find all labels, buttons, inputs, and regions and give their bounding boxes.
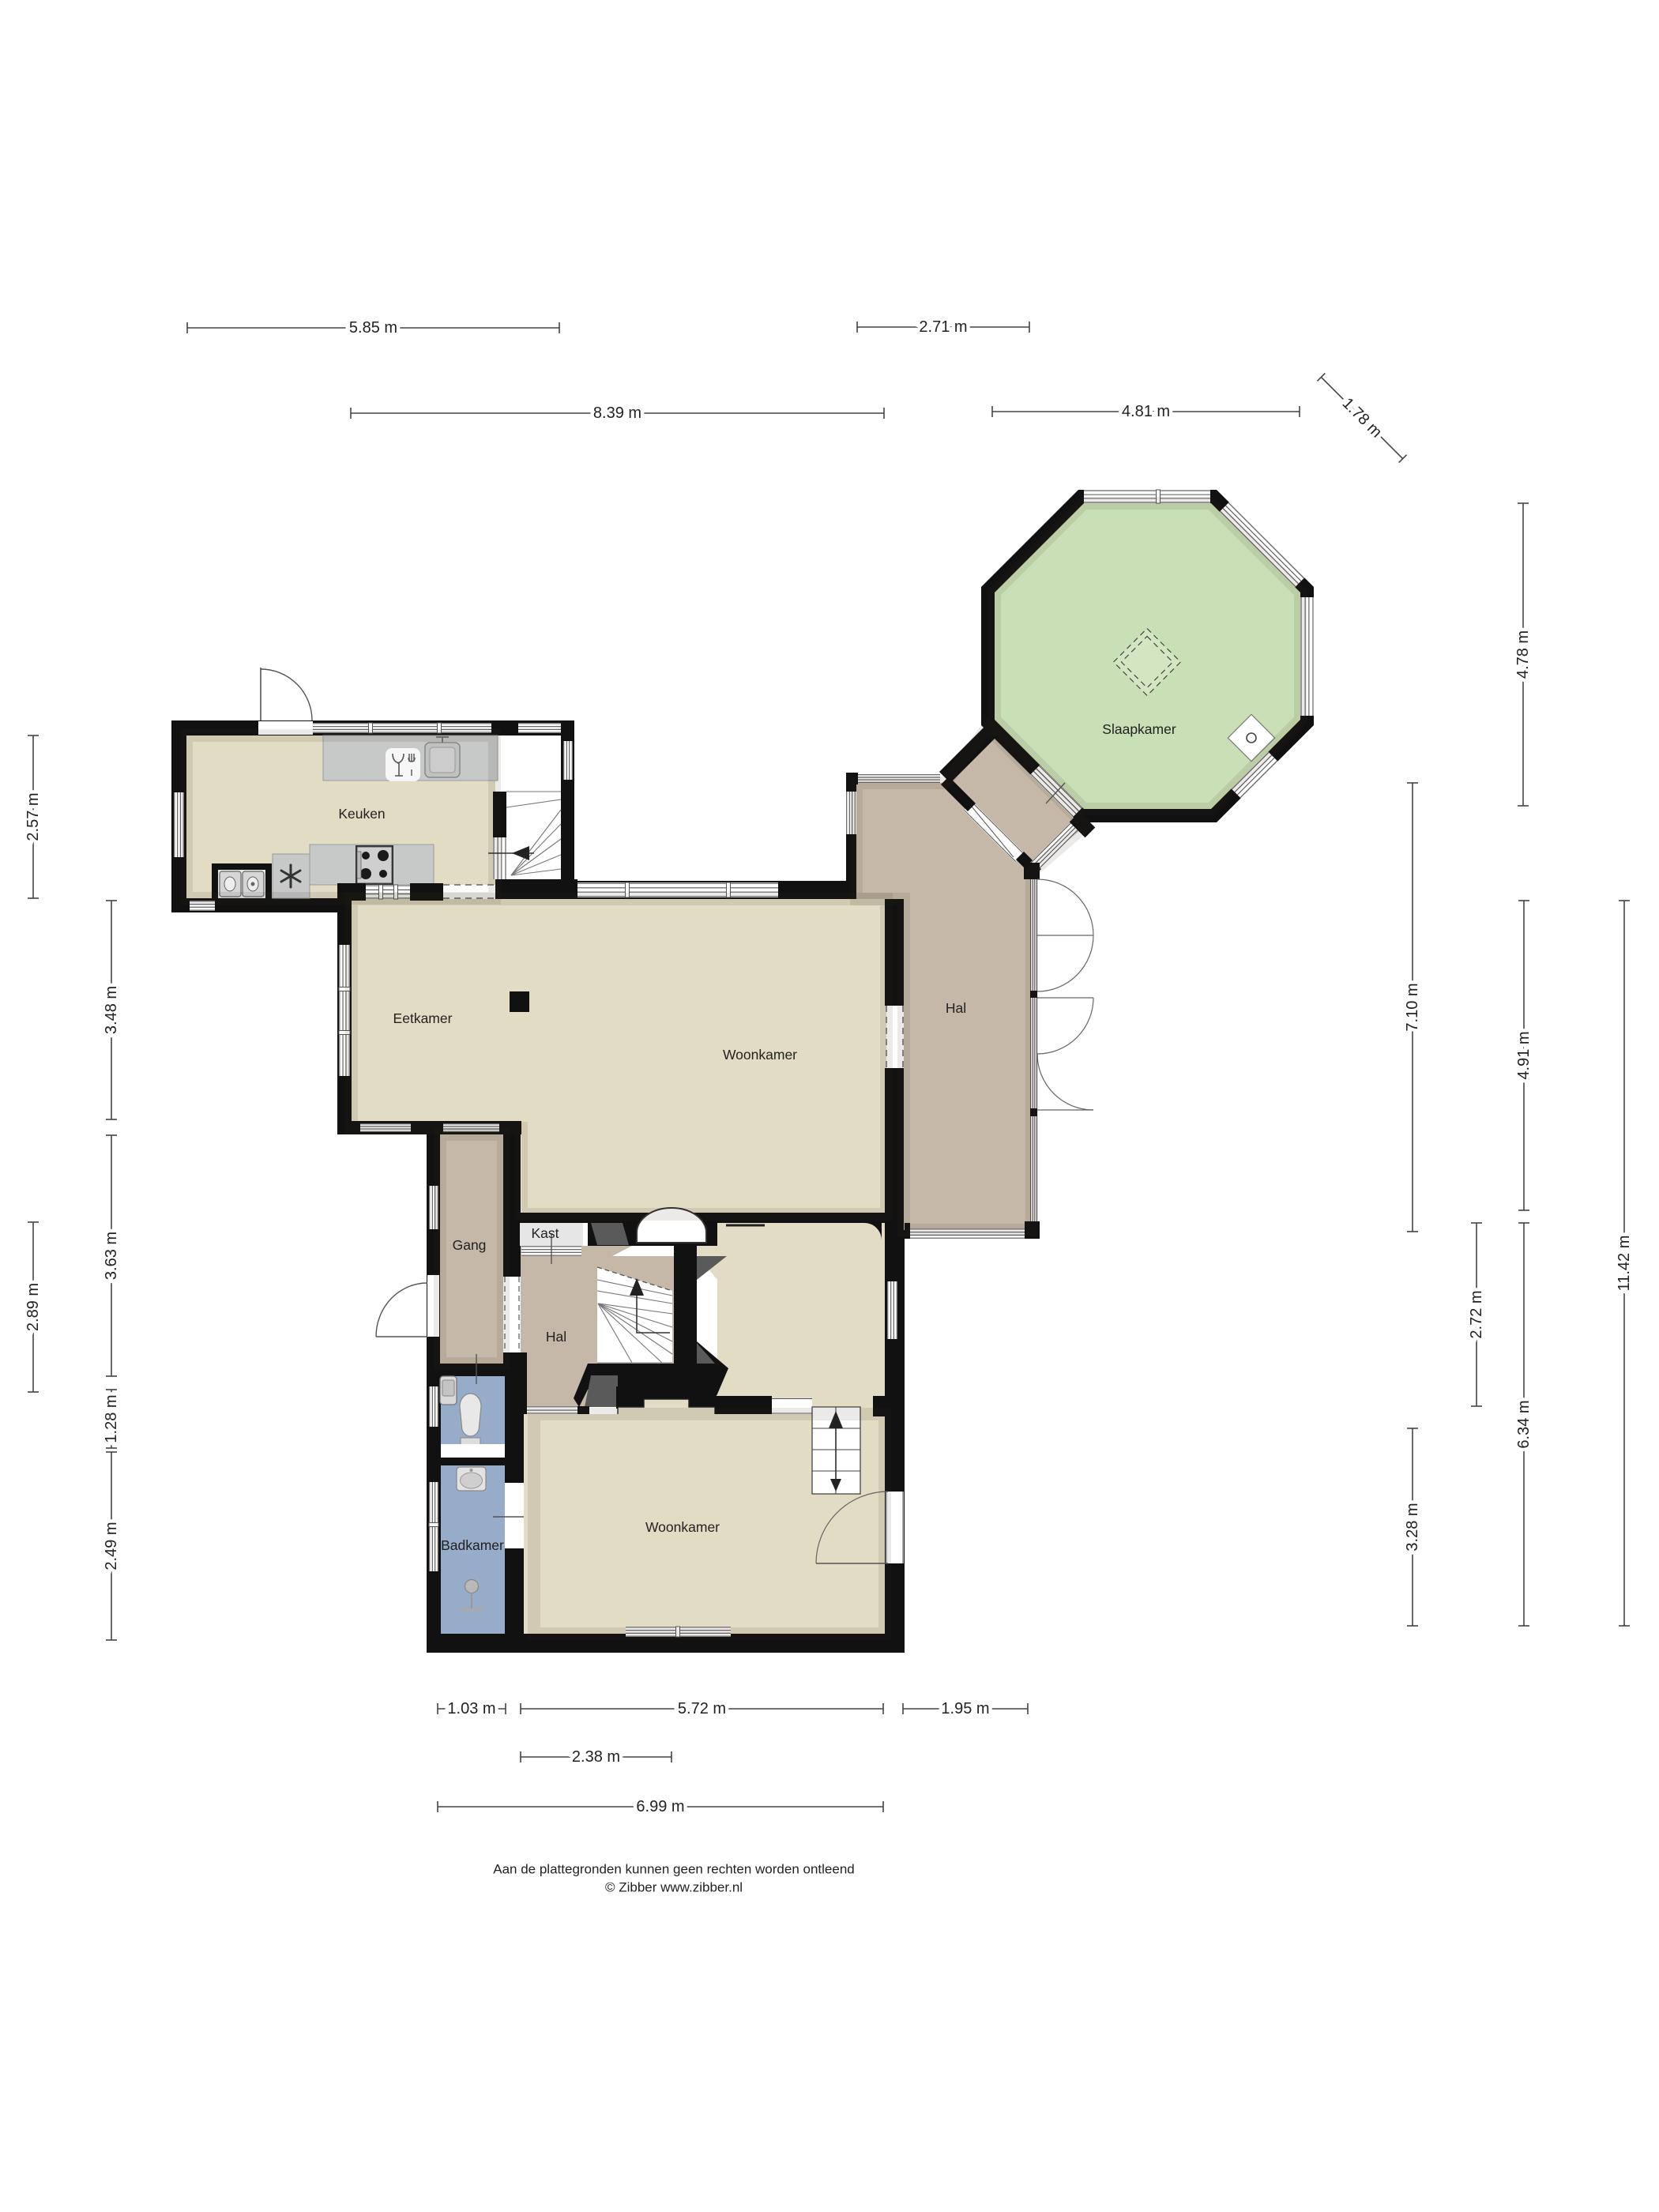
svg-text:1.03 m: 1.03 m (447, 1700, 495, 1717)
svg-text:3.48 m: 3.48 m (103, 986, 120, 1034)
svg-text:1.95 m: 1.95 m (941, 1700, 989, 1717)
svg-text:7.10 m: 7.10 m (1404, 983, 1421, 1031)
svg-text:Hal: Hal (946, 1000, 966, 1016)
svg-text:6.34 m: 6.34 m (1515, 1400, 1533, 1448)
svg-text:5.72 m: 5.72 m (678, 1700, 726, 1717)
svg-text:Slaapkamer: Slaapkamer (1102, 721, 1176, 737)
svg-text:Badkamer: Badkamer (441, 1537, 504, 1553)
svg-text:6.99 m: 6.99 m (636, 1798, 684, 1815)
svg-text:3.63 m: 3.63 m (103, 1232, 120, 1280)
svg-text:© Zibber www.zibber.nl: © Zibber www.zibber.nl (605, 1880, 743, 1895)
svg-text:Woonkamer: Woonkamer (645, 1519, 720, 1535)
svg-text:Kast: Kast (531, 1225, 559, 1241)
svg-text:2.57 m: 2.57 m (24, 792, 42, 841)
svg-text:5.85 m: 5.85 m (349, 319, 397, 337)
svg-text:4.91 m: 4.91 m (1515, 1031, 1533, 1079)
svg-text:2.89 m: 2.89 m (24, 1283, 42, 1331)
svg-text:4.78 m: 4.78 m (1514, 630, 1532, 679)
svg-text:Aan de plattegronden kunnen ge: Aan de plattegronden kunnen geen rechten… (493, 1862, 854, 1877)
svg-text:8.39 m: 8.39 m (593, 404, 641, 422)
svg-text:Woonkamer: Woonkamer (723, 1047, 797, 1063)
svg-text:2.49 m: 2.49 m (103, 1522, 120, 1570)
svg-text:Hal: Hal (546, 1329, 566, 1345)
svg-text:2.38 m: 2.38 m (572, 1748, 620, 1766)
svg-text:Gang: Gang (453, 1237, 487, 1253)
svg-text:4.81 m: 4.81 m (1122, 403, 1170, 420)
svg-text:Keuken: Keuken (338, 806, 385, 822)
svg-text:2.72 m: 2.72 m (1468, 1290, 1485, 1338)
svg-text:Eetkamer: Eetkamer (393, 1010, 453, 1026)
svg-text:2.71 m: 2.71 m (919, 318, 967, 336)
svg-text:11.42 m: 11.42 m (1616, 1236, 1633, 1292)
svg-text:3.28 m: 3.28 m (1404, 1503, 1421, 1551)
svg-text:1.28 m: 1.28 m (103, 1394, 120, 1443)
